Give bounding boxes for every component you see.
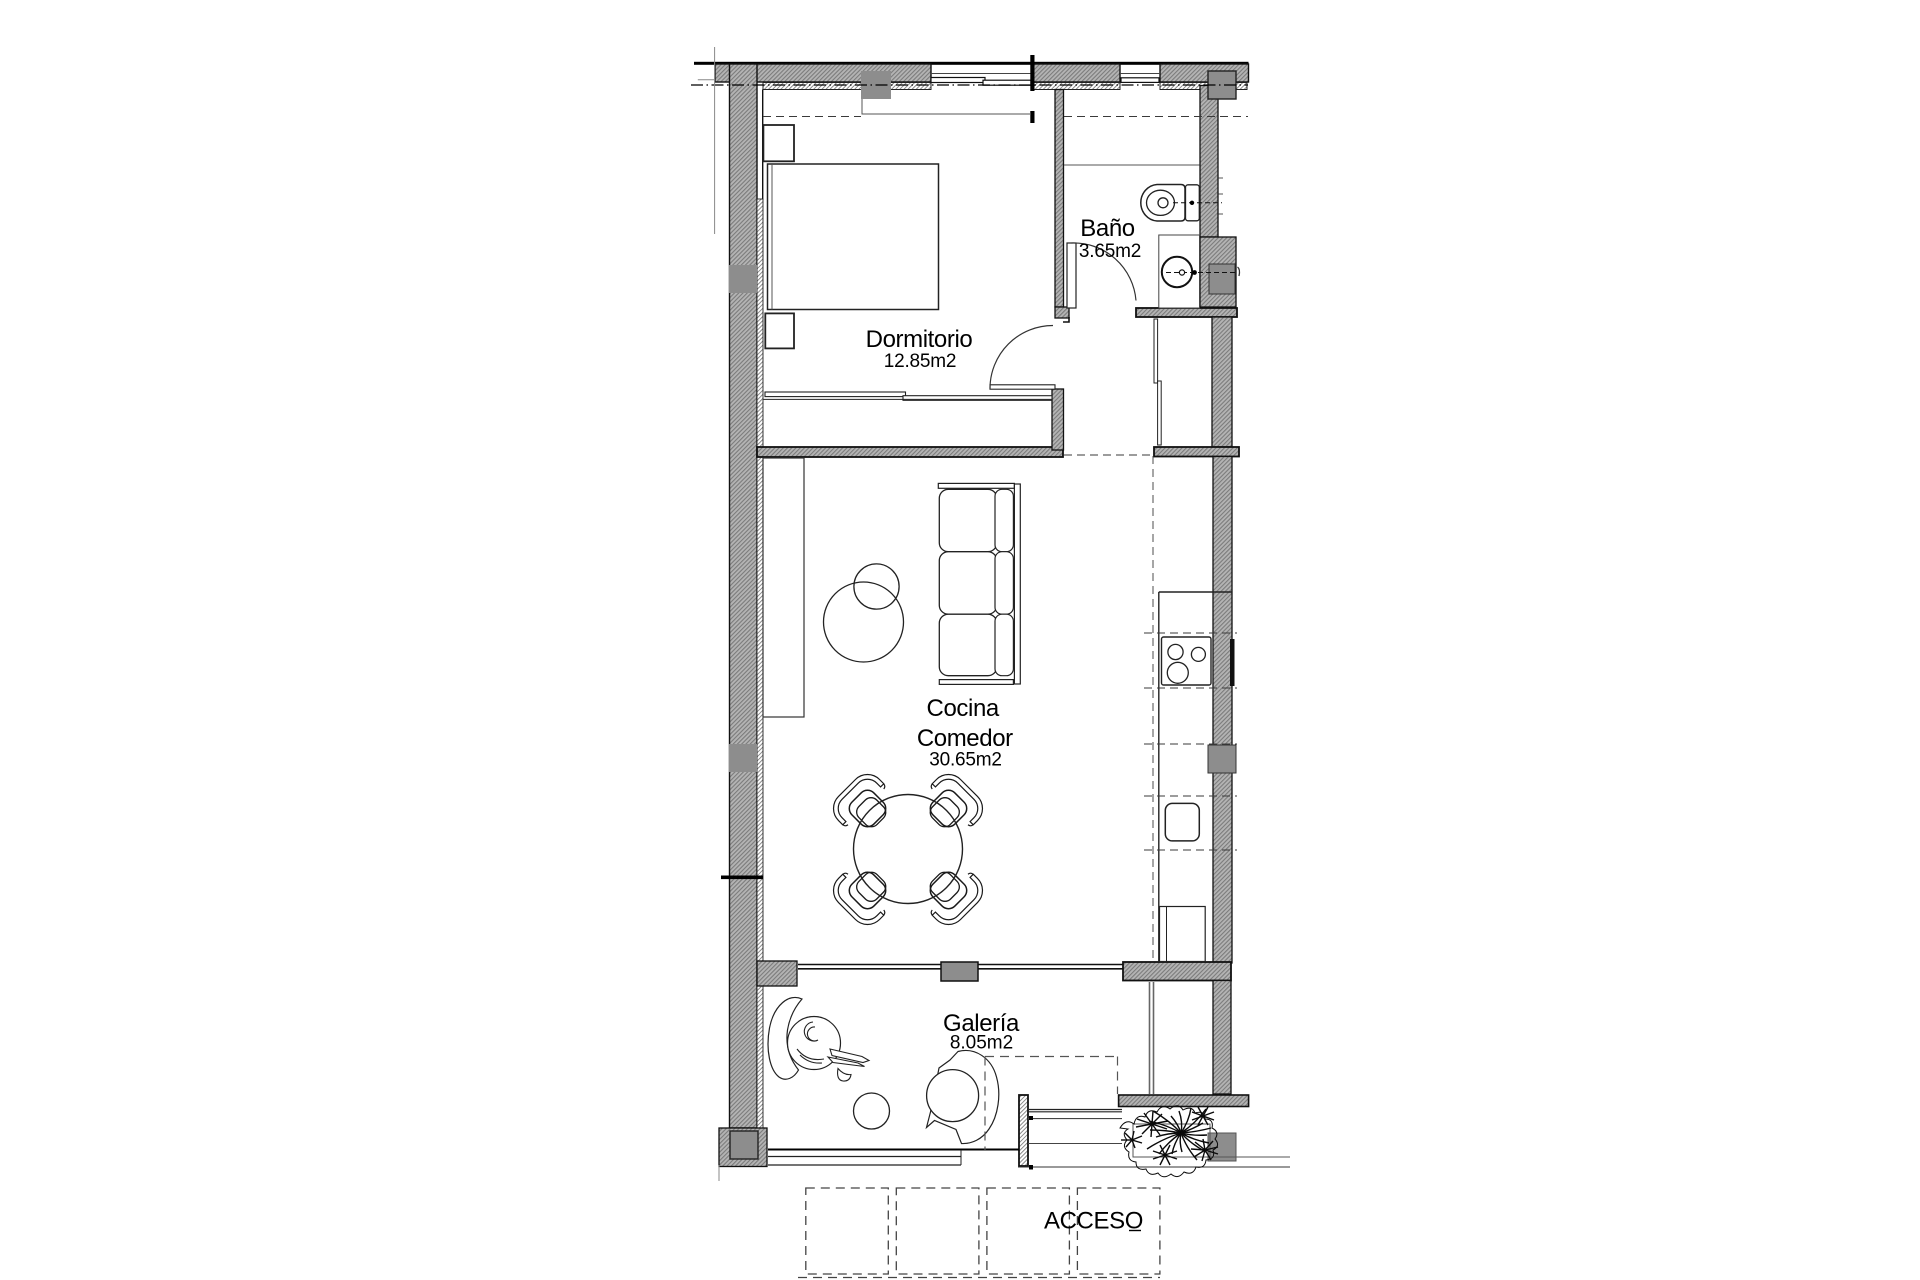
svg-text:Dormitorio: Dormitorio: [866, 326, 973, 353]
svg-text:8.05m2: 8.05m2: [950, 1033, 1013, 1054]
svg-text:30.65m2: 30.65m2: [929, 750, 1002, 771]
svg-text:Cocina: Cocina: [927, 695, 1000, 722]
svg-text:12.85m2: 12.85m2: [884, 351, 957, 372]
svg-text:3.65m2: 3.65m2: [1079, 241, 1141, 262]
svg-text:Baño: Baño: [1080, 215, 1135, 242]
svg-text:Comedor: Comedor: [917, 725, 1013, 752]
svg-text:ACCESO: ACCESO: [1044, 1208, 1143, 1235]
